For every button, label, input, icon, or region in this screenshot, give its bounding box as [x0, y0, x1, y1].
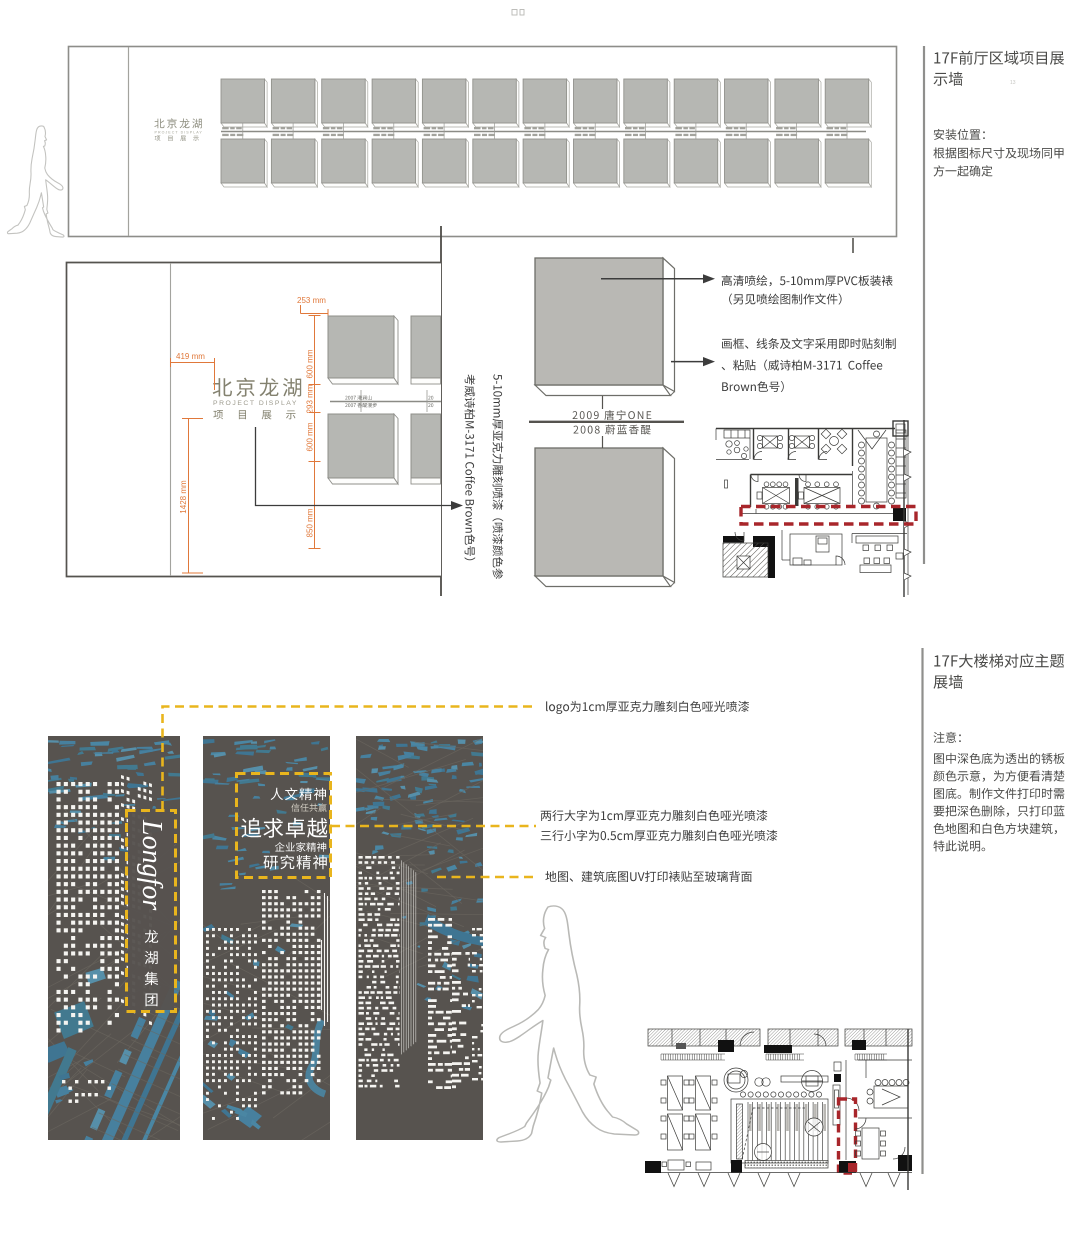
svg-text:253 mm: 253 mm [297, 296, 326, 305]
svg-text:PROJECT DISPLAY: PROJECT DISPLAY [213, 400, 298, 407]
svg-text:600 mm: 600 mm [306, 349, 315, 378]
svg-text:1428 mm: 1428 mm [179, 480, 188, 514]
svg-text:600 mm: 600 mm [306, 422, 315, 451]
svg-text:293 mm: 293 mm [306, 384, 315, 413]
svg-text:850 mm: 850 mm [306, 508, 315, 537]
svg-text:Longfor: Longfor [136, 819, 167, 910]
svg-text:13: 13 [1010, 80, 1016, 86]
svg-text:PROJECT DISPLAY: PROJECT DISPLAY [155, 131, 203, 135]
svg-text:419 mm: 419 mm [176, 352, 205, 361]
